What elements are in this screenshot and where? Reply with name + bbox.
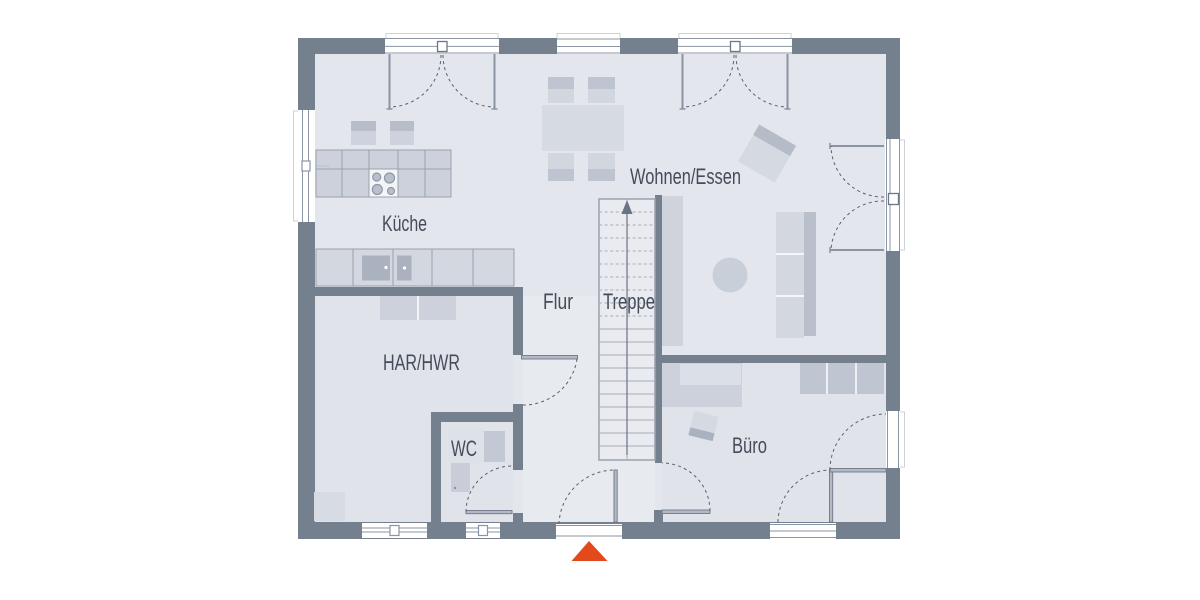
svg-text:Büro: Büro <box>732 433 767 458</box>
svg-text:HAR/HWR: HAR/HWR <box>383 350 460 375</box>
svg-text:Küche: Küche <box>382 211 427 236</box>
svg-text:Treppe: Treppe <box>603 289 655 314</box>
svg-text:Flur: Flur <box>543 289 573 314</box>
svg-text:WC: WC <box>451 436 477 461</box>
svg-text:Wohnen/Essen: Wohnen/Essen <box>630 164 741 189</box>
